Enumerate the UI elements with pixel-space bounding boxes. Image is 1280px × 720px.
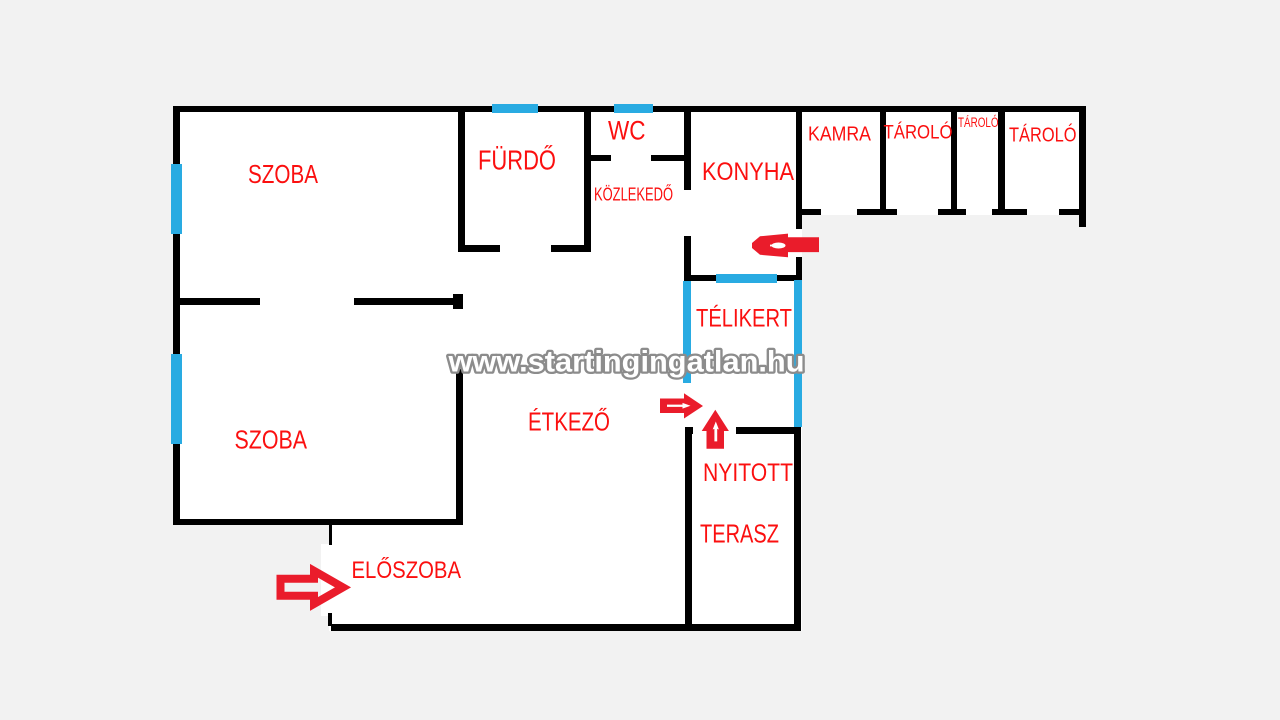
svg-text:TÉLIKERT: TÉLIKERT [696,304,792,333]
svg-text:ÉTKEZŐ: ÉTKEZŐ [528,407,610,437]
svg-text:ELŐSZOBA: ELŐSZOBA [352,557,462,584]
svg-text:TÁROLÓ: TÁROLÓ [884,122,953,144]
svg-text:NYITOTT: NYITOTT [703,459,793,487]
svg-text:www.startingingatlan.hu: www.startingingatlan.hu [447,346,804,379]
svg-text:TÁROLÓ: TÁROLÓ [1009,124,1077,147]
svg-text:TÁROLÓ: TÁROLÓ [958,115,999,130]
svg-text:SZOBA: SZOBA [235,425,308,455]
svg-text:SZOBA: SZOBA [248,159,319,189]
svg-text:FÜRDŐ: FÜRDŐ [478,145,556,176]
svg-text:KONYHA: KONYHA [702,158,794,186]
svg-text:TERASZ: TERASZ [700,519,779,549]
svg-text:KAMRA: KAMRA [808,124,872,146]
svg-text:WC: WC [608,116,646,146]
svg-text:KÖZLEKEDŐ: KÖZLEKEDŐ [594,184,673,205]
